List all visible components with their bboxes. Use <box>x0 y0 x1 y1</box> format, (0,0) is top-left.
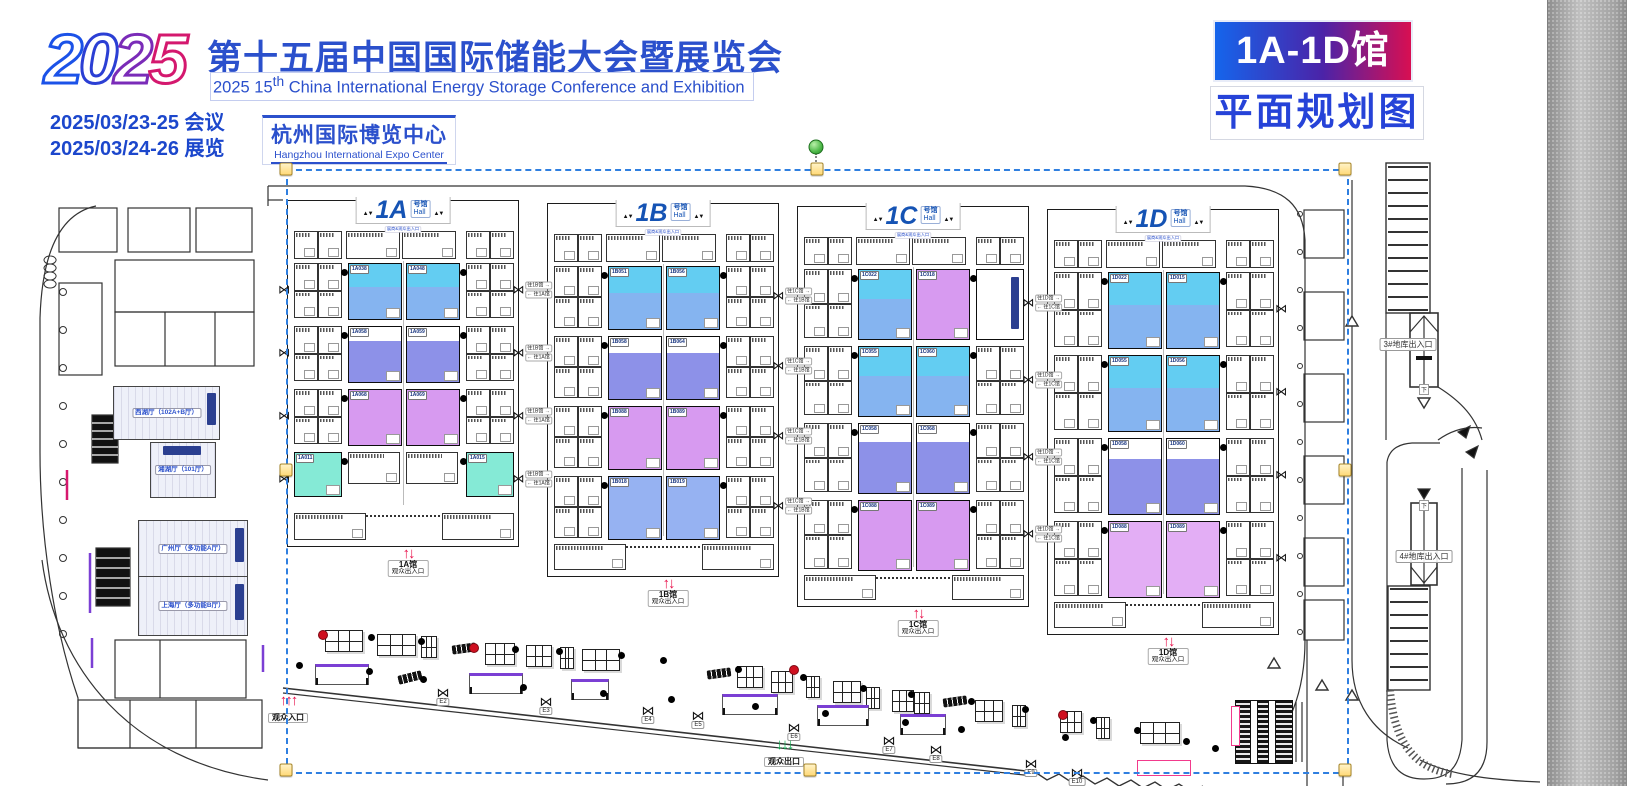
rotate-handle[interactable] <box>809 140 824 155</box>
room-name: 广州厅（多功能A厅） <box>158 544 227 554</box>
selection-handle-bottom-mid[interactable] <box>804 764 817 777</box>
meeting-room: 广州厅（多功能A厅） <box>138 520 248 578</box>
selection-box[interactable] <box>286 169 1349 774</box>
meeting-room: 西湖厅（102A+B厅） <box>113 386 220 440</box>
meeting-room: 湘湖厅（101厅） <box>150 442 216 498</box>
window-side-strip <box>1547 0 1627 786</box>
down-chip: 下 <box>1419 500 1429 511</box>
selection-handle-bottom-left[interactable] <box>280 764 293 777</box>
podium-bar <box>163 446 201 455</box>
podium-bar <box>235 528 244 563</box>
selection-handle-top-left[interactable] <box>280 163 293 176</box>
podium-bar <box>235 584 244 620</box>
selection-handle-mid-right[interactable] <box>1339 464 1352 477</box>
room-name: 西湖厅（102A+B厅） <box>132 408 201 418</box>
garage-4-label: 4#地库出入口 <box>1396 550 1453 563</box>
selection-handle-bottom-right[interactable] <box>1339 764 1352 777</box>
selection-handle-mid-left[interactable] <box>280 464 293 477</box>
floor-plan-canvas: 2025 第十五届中国国际储能大会暨展览会 2025 15th China In… <box>0 0 1627 786</box>
room-name: 上海厅（多功能B厅） <box>158 601 227 611</box>
down-chip: 下 <box>1419 384 1429 395</box>
garage-3-label: 3#地库出入口 <box>1380 338 1437 351</box>
podium-bar <box>207 393 216 425</box>
selection-handle-top-mid[interactable] <box>811 163 824 176</box>
room-name: 湘湖厅（101厅） <box>155 465 211 475</box>
selection-handle-top-right[interactable] <box>1339 163 1352 176</box>
meeting-room: 上海厅（多功能B厅） <box>138 576 248 636</box>
